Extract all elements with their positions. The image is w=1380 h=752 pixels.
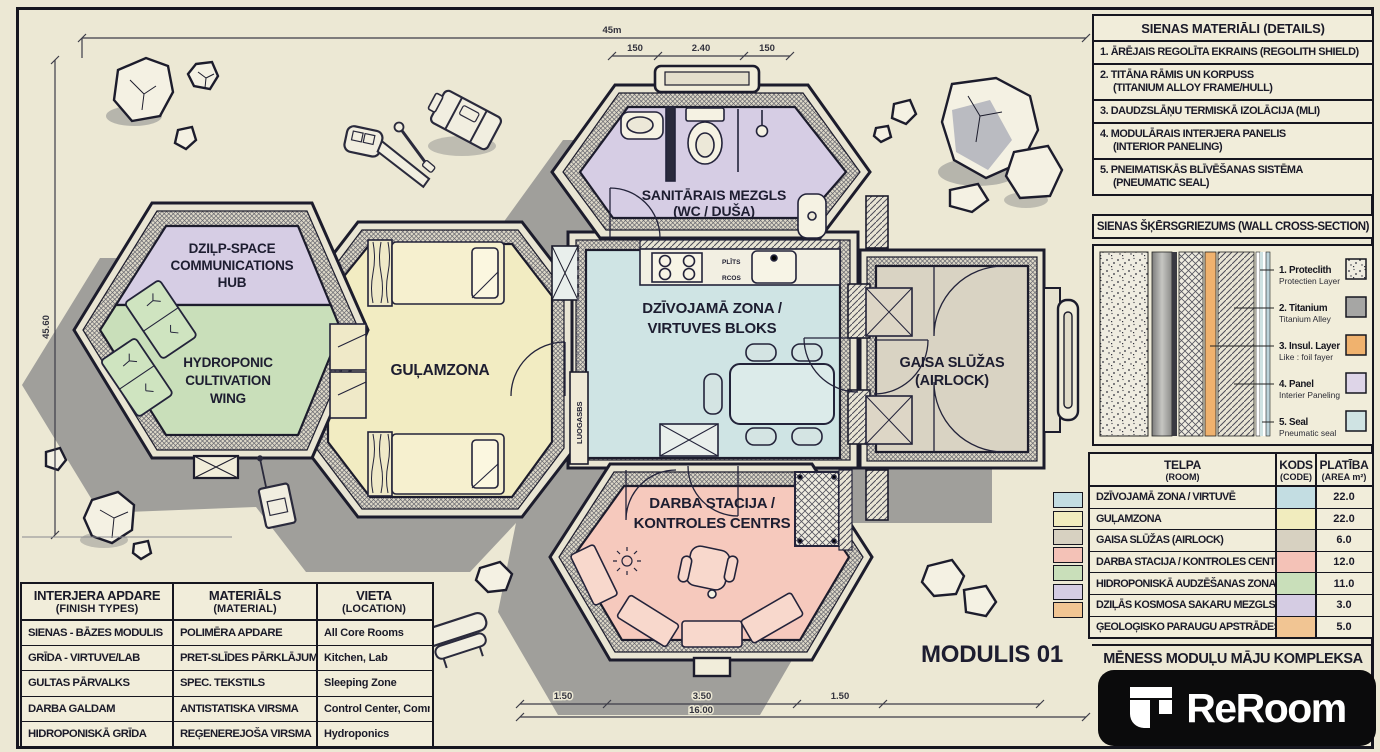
dim-b1: 1.50 (554, 691, 573, 702)
material-item: 4. MODULĀRAIS INTERJERA PANELIS (INTERIO… (1094, 124, 1372, 160)
material-item: 1. ĀRĒJAIS REGOLĪTA EKRAINS (REGOLITH SH… (1094, 42, 1372, 65)
materials-title: SIENAS MATERIĀLI (DETAILS) (1094, 16, 1372, 42)
table-row: HIDROPONISKĀ GRĪDA REĢENEREJOŠA VIRSMA H… (22, 722, 432, 746)
svg-text:5. Seal: 5. Seal (1279, 417, 1309, 428)
svg-text:Like : foil fayer: Like : foil fayer (1279, 352, 1333, 362)
swatch-living (1053, 492, 1083, 508)
swatch-seal (1346, 411, 1366, 431)
dim-total: 16.00 (689, 705, 713, 716)
materials-panel: SIENAS MATERIĀLI (DETAILS) 1. ĀRĒJAIS RE… (1092, 14, 1374, 196)
cross-section-title: SIENAS ŠĶĒRSGRIEZUMS (WALL CROSS-SECTION… (1092, 214, 1374, 239)
svg-text:(WC / DUŠA): (WC / DUŠA) (673, 202, 755, 219)
swatch-hydro (1053, 565, 1083, 581)
rock-icon (892, 100, 916, 124)
table-row: SIENAS - BĀZES MODULIS POLIMĒRA APDARE A… (22, 621, 432, 646)
dim-s1: 150 (627, 43, 643, 54)
dim-b2: 3.50 (693, 691, 712, 702)
swatch-proteclith (1346, 259, 1366, 279)
cross-section-panel: 1. Proteclith Protectien Layer 2. Titani… (1092, 244, 1374, 446)
label-hydro: HYDROPONIC (183, 355, 273, 370)
brand-name: ReRoom (1186, 685, 1346, 732)
label-comms: DZIĻP-SPACE (189, 241, 276, 256)
label-sanitary: SANITĀRAIS MEZGLS (642, 187, 786, 203)
dim-b3: 1.50 (831, 691, 850, 702)
rock-icon (950, 184, 988, 212)
layer-regolith (1100, 252, 1148, 436)
swatch-sleep (1053, 511, 1083, 527)
table-row: GAISA SLŪŽAS (AIRLOCK) 6.0 (1090, 530, 1372, 552)
svg-text:Titanium Alley: Titanium Alley (1279, 314, 1332, 324)
layer-titanium (1152, 252, 1172, 436)
label-work: DARBA STACIJA / (649, 495, 776, 512)
rock-icon (1006, 146, 1062, 198)
material-item: 2. TITĀNA RĀMIS UN KORPUSS (TITANIUM ALL… (1094, 65, 1372, 101)
swatch-lab (1053, 602, 1083, 618)
label-sleep: GUĻAMZONA (391, 362, 490, 379)
reroom-logo-icon (1128, 685, 1174, 731)
table-row: DARBA STACIJA / KONTROLES CENTRS 12.0 (1090, 552, 1372, 574)
equipment-rack-icon (795, 472, 839, 546)
label-counter: RCOS (722, 275, 741, 282)
table-row: DARBA GALDAM ANTISTATISKA VIRSMA Control… (22, 697, 432, 722)
svg-text:HUB: HUB (218, 275, 247, 290)
layer-insulation (1205, 252, 1216, 436)
table-row: DZĪVOJAMĀ ZONA / VIRTUVĒ 22.0 (1090, 487, 1372, 509)
rock-icon (84, 492, 134, 543)
svg-text:Protectien Layer: Protectien Layer (1279, 276, 1340, 286)
swatch-panel (1346, 373, 1366, 393)
rock-icon (133, 541, 151, 559)
rock-icon (175, 127, 196, 149)
table-row: GUĻAMZONA 22.0 (1090, 509, 1372, 531)
swatch-titanium (1346, 297, 1366, 317)
table-row: GRĪDA - VIRTUVE/LAB PRET-SLĪDES PĀRKLĀJU… (22, 646, 432, 671)
bed-top-icon (368, 240, 504, 306)
toilet-icon (686, 108, 724, 164)
layer-panel (1218, 252, 1254, 436)
dim-top: 45m (602, 25, 621, 36)
svg-text:COMMUNICATIONS: COMMUNICATIONS (171, 258, 294, 273)
layer-seal (1266, 252, 1270, 436)
material-item: 3. DAUDZSLĀŅU TERMISKĀ IZOLĀCIJA (MLI) (1094, 101, 1372, 124)
title-block: MĒNESS MODUĻU MĀJU KOMPLEKSA (1092, 644, 1374, 667)
table-row: ĢEOLOĢISKO PARAUGU APSTRĀDES LAB 5.0 (1090, 617, 1372, 638)
label-airlock: GAISA SLŪŽAS (899, 353, 1005, 371)
svg-text:2. Titanium: 2. Titanium (1279, 303, 1328, 314)
project-title: MĒNESS MODUĻU MĀJU KOMPLEKSA (1092, 646, 1374, 667)
kitchen-sink-icon (752, 251, 796, 283)
svg-text:1. Proteclith: 1. Proteclith (1279, 265, 1331, 276)
finish-table-header: INTERJERA APDARE(FINISH TYPES) MATERIĀLS… (22, 584, 432, 621)
swatch-work (1053, 547, 1083, 563)
cross-section-legend: 1. Proteclith Protectien Layer 2. Titani… (1279, 259, 1366, 438)
table-row: HIDROPONISKĀ AUDZĒŠANAS ZONA 11.0 (1090, 573, 1372, 595)
svg-text:CULTIVATION: CULTIVATION (185, 373, 271, 388)
module-number: MODULIS 01 (921, 641, 1063, 668)
layer-mli (1179, 252, 1203, 436)
rock-icon (476, 562, 512, 592)
wall-cross-section-diagram: 1. Proteclith Protectien Layer 2. Titani… (1094, 246, 1371, 443)
label-duct: LUOGASBS (575, 401, 584, 444)
finish-table: INTERJERA APDARE(FINISH TYPES) MATERIĀLS… (20, 582, 434, 748)
svg-text:4. Panel: 4. Panel (1279, 379, 1314, 390)
reroom-badge: ReRoom (1098, 670, 1376, 746)
dim-s2: 2.40 (692, 43, 711, 54)
table-row: GULTAS PĀRVALKS SPEC. TEKSTILS Sleeping … (22, 671, 432, 696)
swatch-comms (1053, 584, 1083, 600)
svg-text:KONTROLES CENTRS: KONTROLES CENTRS (634, 515, 791, 532)
rooms-area-table: TELPA(ROOM) KODS(CODE) PLATĪBA(AREA m²) … (1088, 452, 1374, 639)
dim-left: 45.60 (41, 315, 52, 339)
svg-text:3. Insul. Layer: 3. Insul. Layer (1279, 341, 1340, 352)
rock-icon (964, 586, 996, 616)
svg-text:Pneumatic seal: Pneumatic seal (1279, 428, 1336, 438)
swatch-airlock (1053, 529, 1083, 545)
svg-text:(AIRLOCK): (AIRLOCK) (915, 373, 989, 389)
table-row: DZIĻĀS KOSMOSA SAKARU MEZGLS 3.0 (1090, 595, 1372, 617)
dim-s3: 150 (759, 43, 775, 54)
bed-bottom-icon (368, 432, 504, 496)
room-color-swatches (1053, 452, 1083, 620)
material-item: 5. PNEIMATISKĀS BLĪVĒŠANAS SISTĒMA (PNEU… (1094, 160, 1372, 194)
rock-icon (874, 126, 891, 142)
svg-text:VIRTUVES BLOKS: VIRTUVES BLOKS (648, 320, 777, 337)
rock-icon (114, 58, 173, 121)
svg-text:WING: WING (210, 391, 246, 406)
swatch-insulation (1346, 335, 1366, 355)
svg-text:Interier Paneling: Interier Paneling (1279, 390, 1340, 400)
label-living: DZĪVOJAMĀ ZONA / (642, 300, 783, 317)
rooms-table-header: TELPA(ROOM) KODS(CODE) PLATĪBA(AREA m²) (1090, 454, 1372, 487)
rock-icon (922, 560, 964, 596)
label-stove: PLĪTS (722, 258, 741, 266)
